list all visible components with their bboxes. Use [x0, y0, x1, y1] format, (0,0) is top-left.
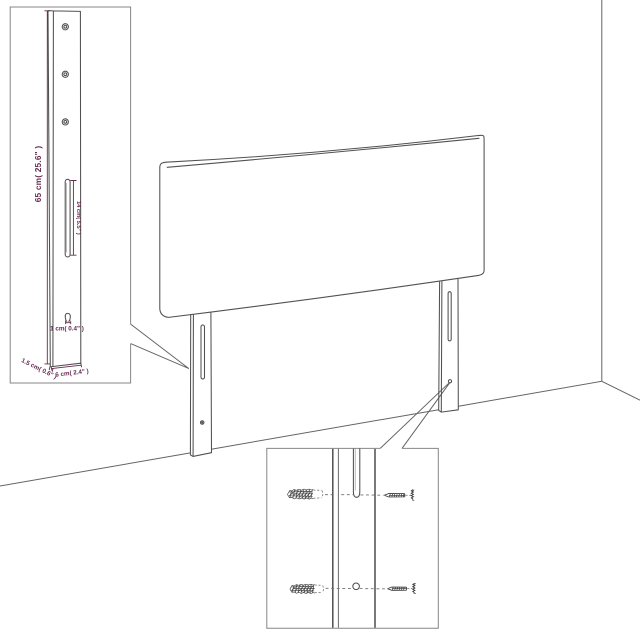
svg-text:65 cm( 25.6" ): 65 cm( 25.6" )	[33, 146, 43, 203]
svg-text:14 cm( 5.5" ): 14 cm( 5.5" )	[75, 201, 81, 235]
svg-text:6 cm( 2.4" ): 6 cm( 2.4" )	[55, 368, 89, 379]
svg-text:1 cm( 0.4" ): 1 cm( 0.4" )	[50, 326, 84, 333]
